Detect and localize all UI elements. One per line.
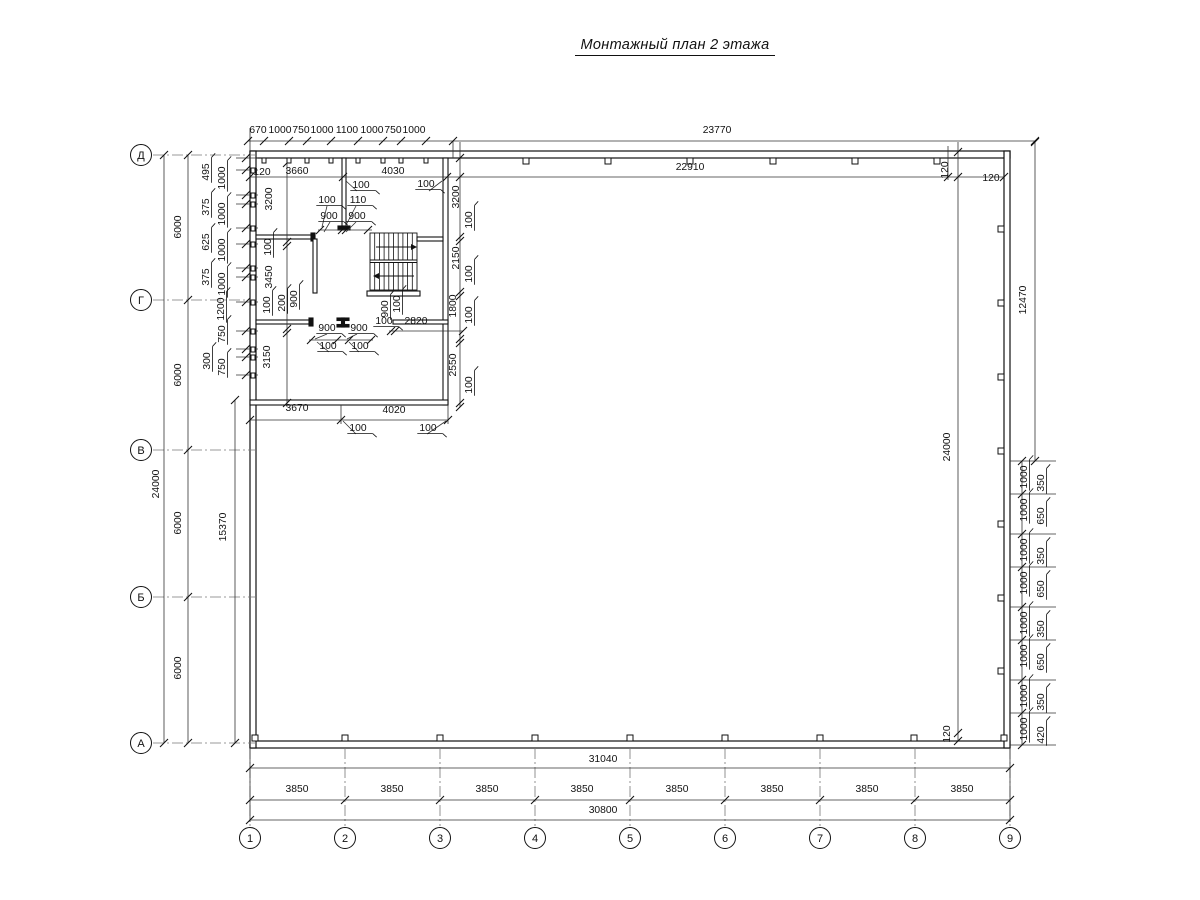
- dim-label-group: 100: [317, 341, 346, 355]
- stair-treads: [375, 233, 413, 290]
- column-marker: [627, 735, 633, 741]
- column-marker: [998, 374, 1004, 380]
- dim-label-group: 1000: [217, 228, 231, 263]
- dim-label-group: 375: [201, 258, 215, 287]
- dim-label-group: 2820: [405, 316, 428, 327]
- dim-label: 1000: [217, 238, 228, 261]
- dim-label: 3850: [286, 784, 309, 795]
- dim-label: 100: [464, 265, 475, 282]
- dimension-ticks: [160, 137, 1039, 824]
- grid-lines: [153, 155, 1010, 826]
- axis-bubble: 1: [240, 828, 261, 849]
- dim-label-group: 1000: [403, 125, 426, 136]
- dim-leader: [324, 222, 330, 232]
- dim-label-group: 3850: [286, 784, 309, 795]
- dim-label: 350: [1036, 474, 1047, 491]
- column-marker: [399, 158, 403, 163]
- dim-label: 24000: [151, 469, 162, 498]
- column-marker: [329, 158, 333, 163]
- dim-label-group: 6000: [173, 363, 184, 386]
- axis-bubble: В: [131, 440, 152, 461]
- dim-label-group: 100: [316, 195, 345, 209]
- column-marker: [1001, 735, 1007, 741]
- column-marker: [262, 158, 266, 163]
- dim-label-group: 3150: [262, 345, 273, 368]
- axis-bubble-label: 8: [912, 833, 918, 845]
- dim-label: 4030: [382, 166, 405, 177]
- column-marker: [251, 300, 255, 305]
- dim-label-group: 120: [940, 161, 951, 178]
- column-marker: [251, 355, 255, 360]
- dim-label-group: 375: [201, 188, 215, 217]
- dim-label-group: 100: [464, 201, 478, 230]
- dim-label: 900: [289, 290, 300, 307]
- dim-label: 1000: [1019, 611, 1030, 634]
- axis-bubble: 7: [810, 828, 831, 849]
- dim-label: 3200: [451, 185, 462, 208]
- dim-label-group: 23770: [703, 125, 732, 136]
- dim-label: 100: [464, 211, 475, 228]
- dim-label-group: 100: [350, 180, 379, 194]
- column-marker: [251, 193, 255, 198]
- dim-label: 100: [392, 295, 403, 312]
- dim-label-group: 3850: [856, 784, 879, 795]
- column-marker: [817, 735, 823, 741]
- dim-label-group: 3850: [666, 784, 689, 795]
- dim-label-group: 3850: [571, 784, 594, 795]
- dim-label: 420: [1036, 726, 1047, 743]
- dim-label: 350: [1036, 620, 1047, 637]
- dim-label: 100: [318, 195, 335, 206]
- column-marker: [722, 735, 728, 741]
- dim-label-group: 100: [262, 286, 276, 315]
- dim-label: 23770: [703, 125, 732, 136]
- dim-label: 2150: [451, 246, 462, 269]
- column-markers: [251, 158, 1007, 741]
- dim-label: 100: [263, 238, 274, 255]
- axis-bubble: 4: [525, 828, 546, 849]
- dim-label-group: 100: [464, 366, 478, 395]
- dim-label-group: 350: [1036, 610, 1050, 639]
- dim-label: 495: [201, 163, 212, 180]
- dim-label: 100: [419, 423, 436, 434]
- dim-label-group: 24000: [151, 469, 162, 498]
- dim-label-group: 4020: [383, 405, 406, 416]
- dim-label: 100: [351, 341, 368, 352]
- dim-label-group: 6000: [173, 511, 184, 534]
- axis-bubble: 8: [905, 828, 926, 849]
- dim-label: 120: [253, 167, 270, 178]
- dim-label-group: 3850: [761, 784, 784, 795]
- axis-bubble-label: 5: [627, 833, 633, 845]
- dim-label: 750: [292, 125, 309, 136]
- dim-label: 1000: [311, 125, 334, 136]
- column-marker: [998, 595, 1004, 601]
- dim-label-group: 750: [292, 125, 309, 136]
- dim-label-group: 670: [249, 125, 266, 136]
- dim-label-group: 100: [415, 179, 444, 193]
- dim-label: 650: [1036, 580, 1047, 597]
- dim-label: 1000: [1019, 571, 1030, 594]
- dim-label: 6000: [173, 511, 184, 534]
- dim-label-group: 3660: [286, 166, 309, 177]
- dim-label: 750: [217, 358, 228, 375]
- staircase: [370, 233, 417, 290]
- dim-label: 100: [319, 341, 336, 352]
- axis-bubble-label: 7: [817, 833, 823, 845]
- dim-label-group: 120: [253, 167, 270, 178]
- column-marker: [251, 275, 255, 280]
- dim-label: 900: [318, 323, 335, 334]
- column-marker: [911, 735, 917, 741]
- dim-label: 1800: [448, 294, 459, 317]
- dim-label-group: 900: [346, 211, 375, 225]
- axis-bubble: 9: [1000, 828, 1021, 849]
- column-marker: [605, 158, 611, 164]
- dim-label: 22910: [676, 162, 705, 173]
- dim-label-group: 15370: [218, 512, 229, 541]
- column-marker: [252, 735, 258, 741]
- axis-bubble: А: [131, 733, 152, 754]
- dim-label: 3660: [286, 166, 309, 177]
- column-marker: [998, 521, 1004, 527]
- dim-label: 2550: [448, 353, 459, 376]
- dim-label-group: 100: [417, 423, 446, 437]
- dim-label: 1000: [1019, 498, 1030, 521]
- axis-bubble: Г: [131, 290, 152, 311]
- dim-label: 3150: [262, 345, 273, 368]
- dim-label: 3850: [856, 784, 879, 795]
- dim-label: 120: [982, 173, 999, 184]
- dim-label: 100: [417, 179, 434, 190]
- dim-label-group: 300: [202, 342, 216, 371]
- axis-bubble: 5: [620, 828, 641, 849]
- dim-label-group: 1000: [217, 262, 231, 297]
- dim-label: 375: [201, 198, 212, 215]
- axis-bubble-label: Г: [138, 295, 144, 307]
- dim-label: 650: [1036, 653, 1047, 670]
- column-marker: [998, 300, 1004, 306]
- column-marker: [381, 158, 385, 163]
- dim-label: 6000: [173, 363, 184, 386]
- dim-label-group: 100: [349, 341, 378, 355]
- dim-label: 1200: [216, 297, 227, 320]
- dim-label-group: 650: [1036, 643, 1050, 672]
- dim-label: 6000: [173, 215, 184, 238]
- column-marker: [251, 347, 255, 352]
- dim-label-group: 1000: [217, 192, 231, 227]
- dim-label: 2820: [405, 316, 428, 327]
- dim-label-group: 120: [942, 725, 953, 742]
- dim-label: 100: [464, 376, 475, 393]
- axis-bubble-label: 6: [722, 833, 728, 845]
- dim-label-group: 3200: [264, 187, 275, 210]
- dim-label: 375: [201, 268, 212, 285]
- dim-label: 100: [262, 296, 273, 313]
- dim-label: 3850: [951, 784, 974, 795]
- dim-label-group: 3850: [476, 784, 499, 795]
- dim-label: 3850: [571, 784, 594, 795]
- column-marker: [437, 735, 443, 741]
- dim-label-group: 350: [1036, 464, 1050, 493]
- dim-label: 1000: [1019, 465, 1030, 488]
- dim-label: 1000: [1019, 538, 1030, 561]
- dim-label: 750: [217, 325, 228, 342]
- dim-label-group: 3450: [264, 265, 275, 288]
- dim-label: 1000: [1019, 684, 1030, 707]
- dim-label-group: 2150: [451, 246, 462, 269]
- dim-label: 1100: [336, 125, 358, 136]
- dim-label-group: 1000: [311, 125, 334, 136]
- axis-bubble-label: Д: [137, 150, 145, 162]
- dim-label-group: 750: [217, 348, 231, 377]
- axis-bubble-label: 4: [532, 833, 538, 845]
- dim-label-group: 31040: [589, 754, 618, 765]
- dim-label: 750: [384, 125, 401, 136]
- dim-label-group: 3850: [951, 784, 974, 795]
- floor-plan-svg: ДГВБА123456789 6701000750100011001000750…: [0, 0, 1200, 900]
- dim-label: 1000: [217, 166, 228, 189]
- dim-label: 24000: [942, 432, 953, 461]
- column-marker: [532, 735, 538, 741]
- column-marker: [305, 158, 309, 163]
- dimension-lines: [164, 128, 1056, 822]
- dim-label-group: 22910: [676, 162, 705, 173]
- dim-label: 1000: [1019, 644, 1030, 667]
- dim-label: 3670: [286, 403, 309, 414]
- dim-label-group: 650: [1036, 497, 1050, 526]
- dim-label: 900: [380, 300, 391, 317]
- axis-bubble-label: 2: [342, 833, 348, 845]
- dim-label-group: 30800: [589, 805, 618, 816]
- dim-label: 100: [375, 316, 392, 327]
- dim-label-group: 625: [201, 223, 215, 252]
- dim-label-group: 100: [263, 228, 277, 257]
- column-marker: [251, 226, 255, 231]
- dim-label: 1000: [403, 125, 426, 136]
- axis-bubble: 2: [335, 828, 356, 849]
- dim-label-group: 1000: [269, 125, 292, 136]
- dim-label: 3850: [381, 784, 404, 795]
- dim-label-group: 100: [464, 296, 478, 325]
- dim-label-group: 1800: [448, 294, 459, 317]
- dim-label-group: 3200: [451, 185, 462, 208]
- dim-label-group: 750: [384, 125, 401, 136]
- column-marker: [342, 735, 348, 741]
- dim-label-group: 6000: [173, 215, 184, 238]
- dim-label: 3200: [264, 187, 275, 210]
- dim-label: 1000: [217, 202, 228, 225]
- axis-bubble-label: Б: [137, 592, 144, 604]
- dim-label-group: 2550: [448, 353, 459, 376]
- axis-bubble: Б: [131, 587, 152, 608]
- dim-label: 100: [352, 180, 369, 191]
- dim-label: 3850: [476, 784, 499, 795]
- dimension-labels: 6701000750100011001000750100023770229101…: [151, 125, 1050, 816]
- dim-label: 30800: [589, 805, 618, 816]
- dim-label-group: 120: [982, 173, 999, 184]
- dim-label: 4020: [383, 405, 406, 416]
- dim-leader: [315, 334, 327, 339]
- axis-bubble-label: А: [137, 738, 145, 750]
- dim-label: 12470: [1018, 285, 1029, 314]
- dim-label: 1000: [269, 125, 292, 136]
- dim-label: 3450: [264, 265, 275, 288]
- dim-label: 6000: [173, 656, 184, 679]
- dim-label-group: 6000: [173, 656, 184, 679]
- dim-label: 110: [350, 195, 367, 206]
- column-marker: [770, 158, 776, 164]
- axis-bubble-label: В: [137, 445, 144, 457]
- dim-label-group: 4030: [382, 166, 405, 177]
- dim-label: 1000: [361, 125, 384, 136]
- dim-label: 900: [320, 211, 337, 222]
- dim-label: 350: [1036, 693, 1047, 710]
- dim-label-group: 350: [1036, 537, 1050, 566]
- dim-label-group: 3670: [286, 403, 309, 414]
- dim-label: 15370: [218, 512, 229, 541]
- dim-label-group: 110: [347, 195, 376, 209]
- column-marker: [523, 158, 529, 164]
- column-marker: [251, 242, 255, 247]
- column-marker: [287, 158, 291, 163]
- dim-label-group: 495: [201, 153, 215, 182]
- dim-label: 300: [202, 352, 213, 369]
- axis-bubble: 6: [715, 828, 736, 849]
- axis-bubble-label: 1: [247, 833, 253, 845]
- axis-bubble: 3: [430, 828, 451, 849]
- dim-label-group: 650: [1036, 570, 1050, 599]
- column-marker: [424, 158, 428, 163]
- dim-label-group: 100: [464, 255, 478, 284]
- axis-bubble-label: 3: [437, 833, 443, 845]
- dim-label-group: 24000: [942, 432, 953, 461]
- dim-label: 900: [348, 211, 365, 222]
- dim-label-group: 12470: [1018, 285, 1029, 314]
- column-marker: [251, 329, 255, 334]
- column-marker: [998, 668, 1004, 674]
- dim-label-group: 420: [1036, 716, 1050, 745]
- column-marker: [852, 158, 858, 164]
- dim-label: 100: [464, 306, 475, 323]
- dim-label: 350: [1036, 547, 1047, 564]
- dim-label: 625: [201, 233, 212, 250]
- dim-label: 3850: [761, 784, 784, 795]
- column-marker: [251, 373, 255, 378]
- dim-label: 31040: [589, 754, 618, 765]
- dim-label-group: 3850: [381, 784, 404, 795]
- column-marker: [356, 158, 360, 163]
- dim-label-group: 900: [348, 323, 377, 337]
- dim-label: 670: [249, 125, 266, 136]
- column-marker: [998, 226, 1004, 232]
- dim-label-group: 100: [347, 423, 376, 437]
- axis-bubble-label: 9: [1007, 833, 1013, 845]
- column-marker: [251, 202, 255, 207]
- dim-label-group: 1000: [217, 156, 231, 191]
- dim-label: 120: [942, 725, 953, 742]
- column-marker: [998, 448, 1004, 454]
- dim-label: 650: [1036, 507, 1047, 524]
- dim-label: 1000: [1019, 717, 1030, 740]
- building-outline: [250, 151, 1010, 748]
- column-marker: [251, 266, 255, 271]
- dim-label: 120: [940, 161, 951, 178]
- dim-label: 100: [349, 423, 366, 434]
- axis-bubble: Д: [131, 145, 152, 166]
- dim-label: 200: [277, 294, 288, 311]
- dim-label: 900: [350, 323, 367, 334]
- dim-label-group: 350: [1036, 683, 1050, 712]
- dim-label-group: 1000: [361, 125, 384, 136]
- dim-label: 3850: [666, 784, 689, 795]
- dim-label-group: 1100: [336, 125, 358, 136]
